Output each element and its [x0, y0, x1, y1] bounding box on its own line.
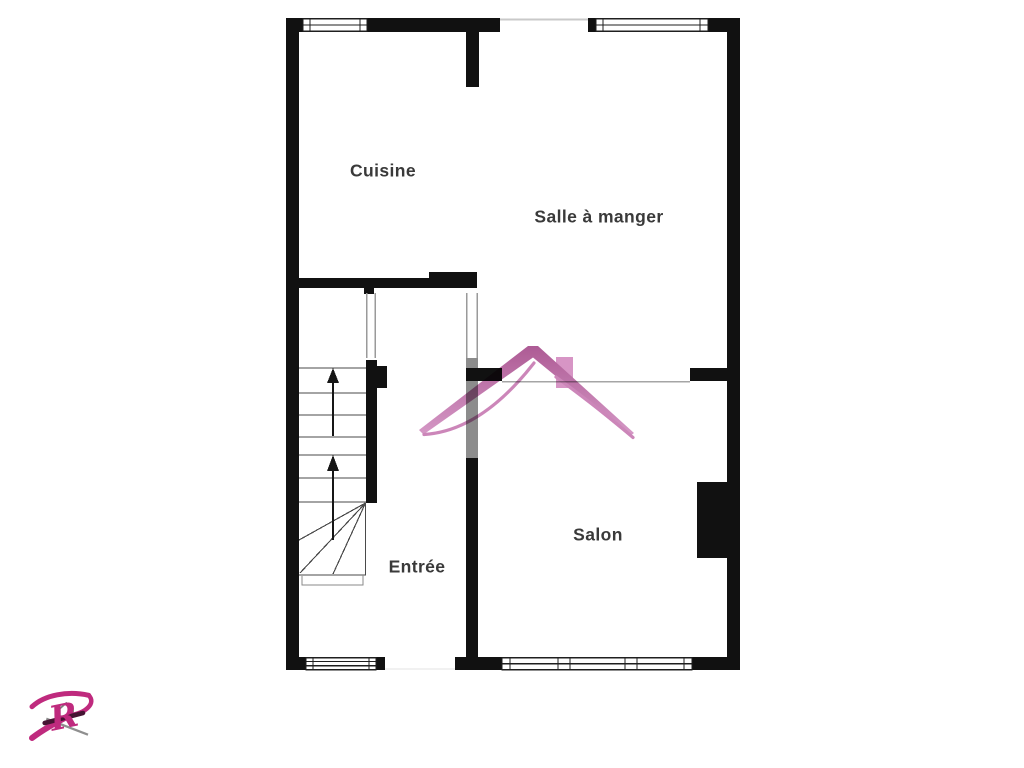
room-label-entree: Entrée — [389, 557, 446, 578]
room-label-salle-a-manger: Salle à manger — [534, 207, 663, 228]
plan-lines-layer — [0, 0, 1024, 768]
room-label-cuisine: Cuisine — [350, 161, 416, 182]
stairs-up-arrow-1 — [327, 368, 339, 436]
logo-letter: R — [45, 695, 82, 740]
stairs-up-arrow-2 — [327, 455, 339, 540]
agency-logo-r-icon: R — [20, 680, 104, 754]
floorplan-canvas: Cuisine Salle à manger Salon Entrée R — [0, 0, 1024, 768]
window-top-right — [596, 19, 708, 32]
window-top-left — [303, 19, 367, 32]
room-label-salon: Salon — [573, 525, 623, 546]
window-bottom-right — [502, 658, 692, 670]
window-bottom-left — [306, 658, 376, 670]
